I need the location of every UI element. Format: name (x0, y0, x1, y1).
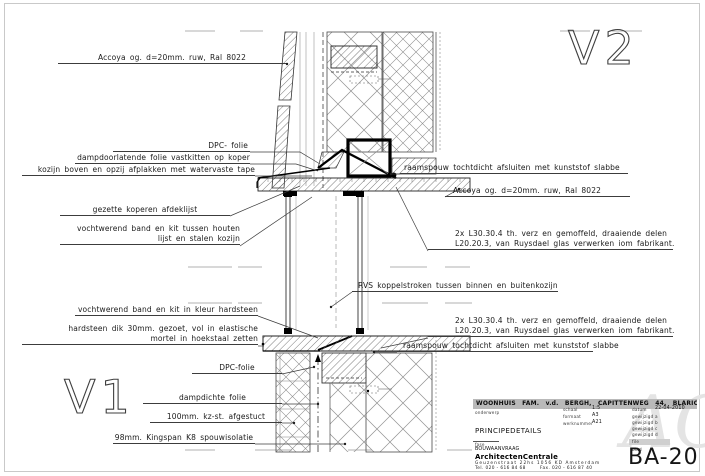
label-staalprofiel-top: 2x L30.30.4 th. verz en gemoffeld, draai… (428, 229, 673, 250)
mortel-block (322, 353, 366, 383)
onderwerp-label: onderwerp (475, 411, 499, 415)
gewijzigd-a: gewijzigd a (632, 415, 658, 419)
bureau-telefoon: Tel. 020 - 616 84 68 (475, 467, 526, 471)
spouwisolatie (366, 353, 432, 452)
detail-label-v1: V1 (64, 370, 135, 424)
label-hardsteen: hardsteen dik 30mm. gezoet, vol in elast… (22, 324, 258, 345)
copper-block (331, 46, 377, 68)
datum-label: datum (632, 408, 647, 412)
masonry-leaf-top (383, 32, 433, 152)
blad-nummer: BA-20 (628, 447, 699, 469)
bottom-detail-v1 (262, 336, 470, 452)
label-accoya-right: Accoya og. d=20mm. ruw, Ral 8022 (445, 186, 630, 197)
label-kozijn-afplakken: kozijn boven en opzij afplakken met wate… (22, 165, 255, 176)
werknummer-value: A21 (592, 421, 602, 426)
steel-angle (343, 191, 357, 196)
label-accoya-top: Accoya og. d=20mm. ruw, Ral 8022 (58, 53, 286, 64)
bureau-name: ArchitectenCentrale (475, 454, 558, 461)
formaat-value: A3 (592, 414, 599, 419)
window-glazing (284, 191, 368, 334)
label-dampdichte-folie: dampdichte folie (143, 393, 282, 404)
battens (300, 32, 314, 186)
cladding-board-upper (279, 32, 297, 100)
label-vochtwerend-band-hardsteen: vochtwerend band en kit in kleur hardste… (75, 305, 258, 316)
werknummer-label: werknummer (563, 422, 593, 426)
label-kingspan-spouwisolatie: 98mm. Kingspan K8 spouwisolatie (113, 433, 255, 444)
label-dampdoorlatende-folie: dampdoorlatende folie vastkitten op kope… (75, 153, 250, 164)
schaal-label: schaal (563, 408, 578, 412)
label-dpc-folie-top: DPC- folie (113, 141, 250, 152)
label-kzst-afgestuct: 100mm. kz-st. afgestuct (150, 412, 282, 423)
copper-afdeklijst (258, 168, 330, 178)
label-vochtwerend-band-houten: vochtwerend band en kit tussen houtenlij… (60, 224, 240, 245)
label-dpc-folie-bottom: DPC-folie (192, 363, 282, 374)
gewijzigd-b: gewijzigd b (632, 421, 658, 425)
label-rvs-koppelstroken: RVS koppelstroken tussen binnen en buite… (352, 281, 558, 292)
datum-value: 22-04-2010 (655, 407, 685, 412)
label-staalprofiel-bottom: 2x L30.30.4 th. verz en gemoffeld, draai… (428, 316, 673, 337)
label-raamspouw-bottom: raamspouw tochtdicht afsluiten met kunst… (397, 341, 593, 352)
label-raamspouw-top: raamspouw tochtdicht afsluiten met kunst… (400, 163, 628, 174)
file-label: file (632, 440, 639, 444)
detail-label-v2: V2 (568, 21, 639, 75)
gewijzigd-c: gewijzigd c (632, 427, 658, 431)
formaat-label: formaat (563, 415, 581, 419)
gewijzigd-d: gewijzigd d (632, 433, 658, 437)
onderwerp-value: PRINCIPEDETAILS (475, 428, 542, 435)
schaal-value: 1:5 (592, 407, 600, 412)
label-koperen-afdeklijst: gezette koperen afdeklijst (60, 205, 230, 216)
bureau-fax: Fax. 020 - 616 87 40 (540, 467, 592, 471)
